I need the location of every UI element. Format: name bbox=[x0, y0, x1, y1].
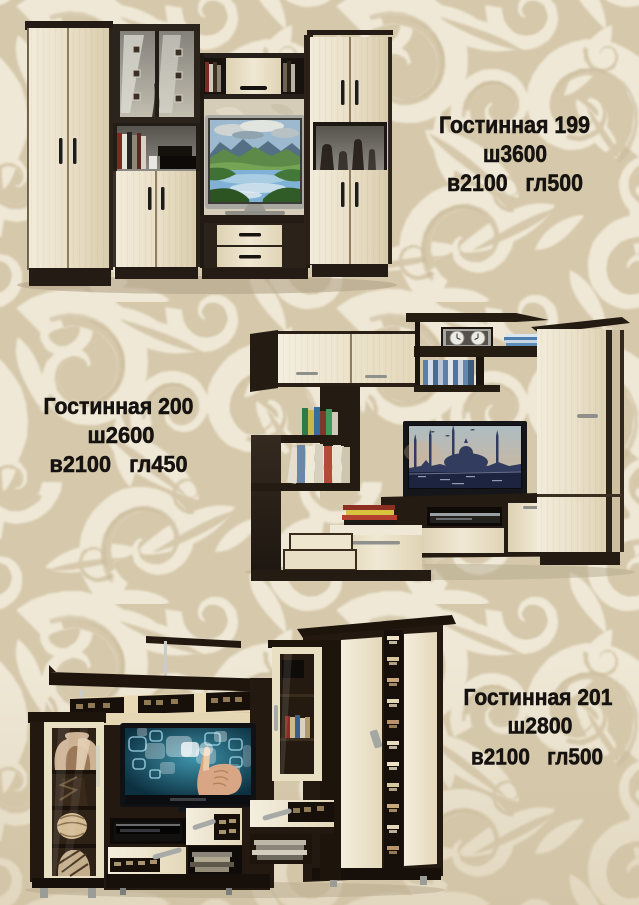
svg-text:Гостинная 200: Гостинная 200 bbox=[44, 393, 194, 419]
svg-text:Гостинная 199: Гостинная 199 bbox=[439, 112, 590, 139]
svg-text:в2100 гл500: в2100 гл500 bbox=[471, 744, 603, 770]
svg-text:ш2800: ш2800 bbox=[508, 713, 573, 739]
svg-text:Гостинная 201: Гостинная 201 bbox=[464, 684, 613, 710]
svg-text:ш3600: ш3600 bbox=[483, 141, 547, 168]
svg-text:в2100 гл500: в2100 гл500 bbox=[447, 170, 583, 197]
svg-text:в2100 гл450: в2100 гл450 bbox=[50, 451, 188, 477]
svg-text:ш2600: ш2600 bbox=[88, 422, 155, 448]
